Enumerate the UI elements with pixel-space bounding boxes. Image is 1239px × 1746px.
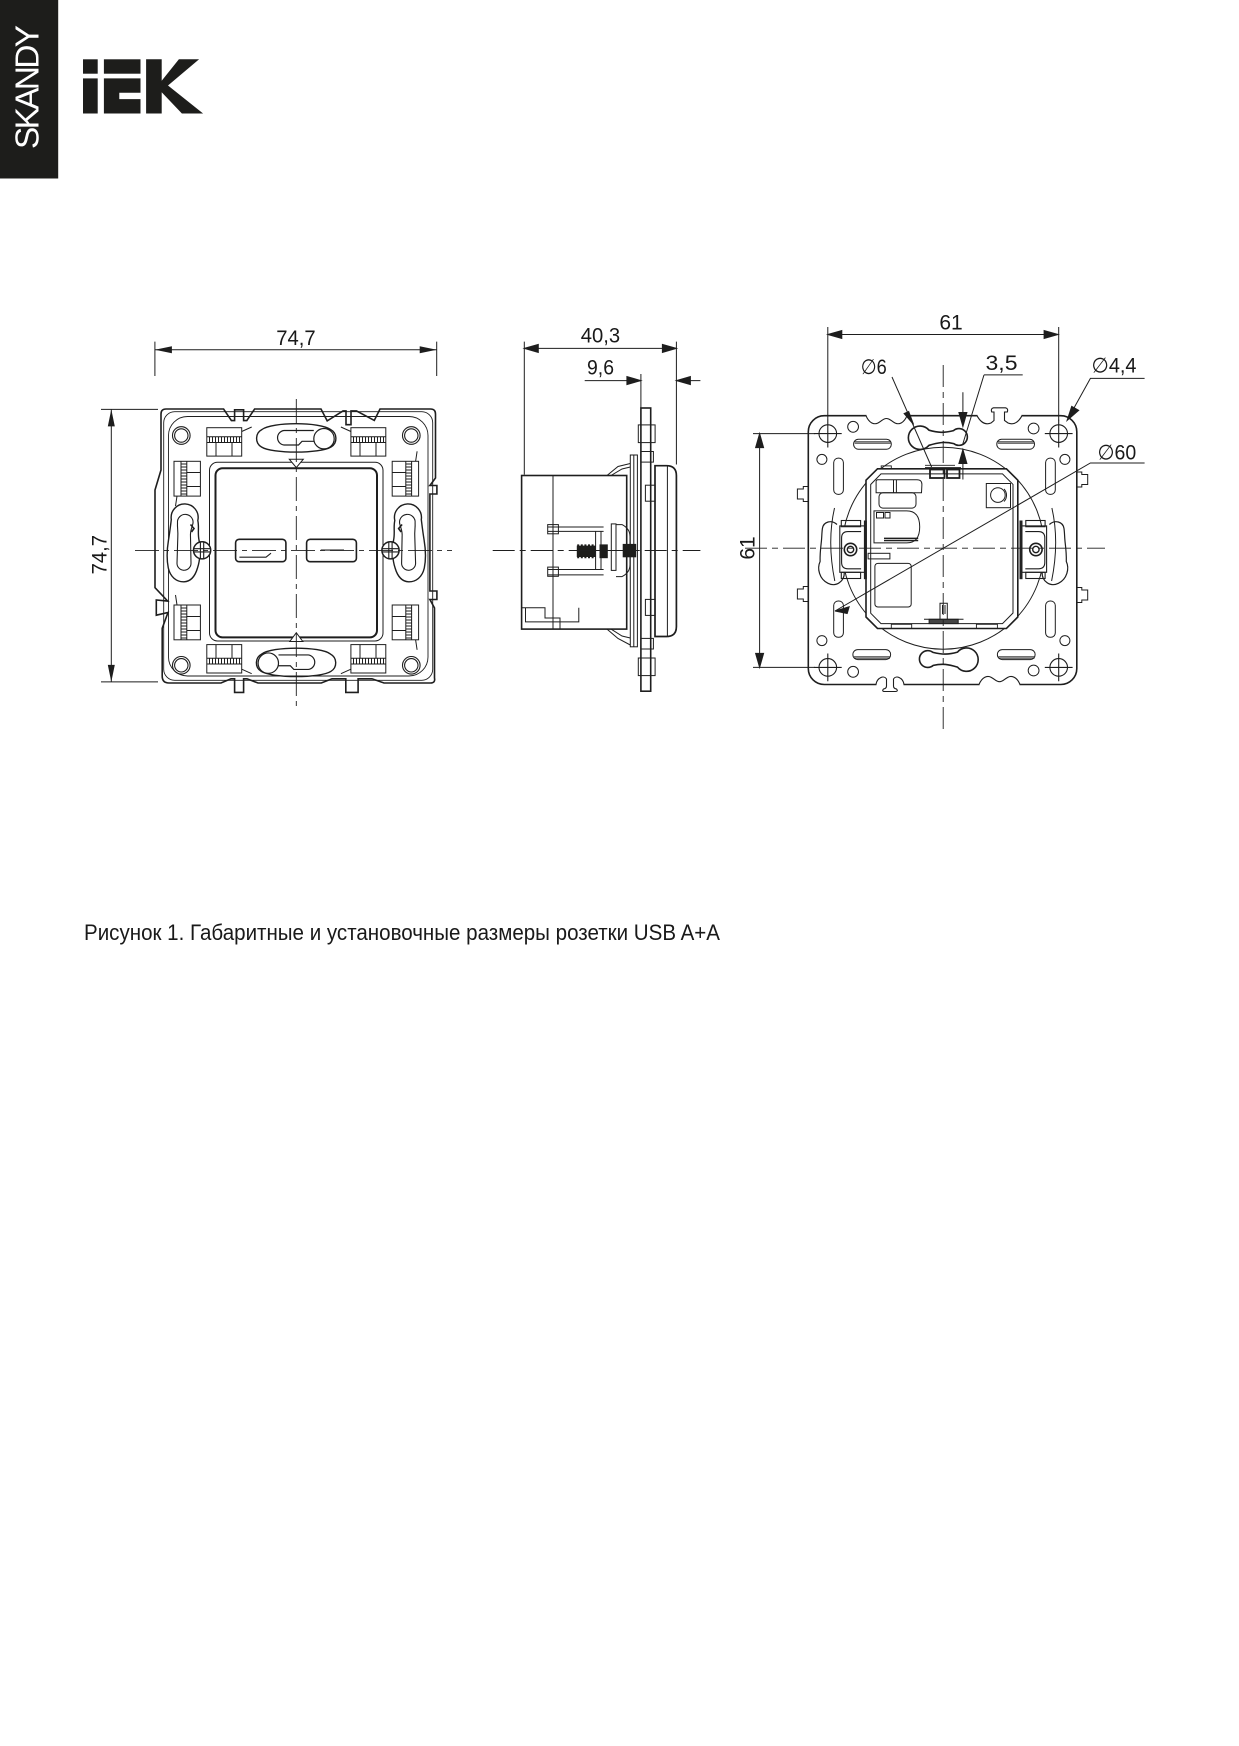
svg-text:9,6: 9,6: [587, 357, 614, 380]
svg-text:3,5: 3,5: [986, 352, 1018, 375]
svg-text:40,3: 40,3: [581, 325, 620, 348]
svg-text:61: 61: [737, 536, 760, 559]
svg-text:SKANDY: SKANDY: [10, 25, 47, 149]
svg-text:∅6: ∅6: [861, 356, 887, 379]
svg-text:74,7: 74,7: [89, 535, 112, 574]
svg-text:74,7: 74,7: [276, 327, 315, 350]
svg-text:∅60: ∅60: [1098, 442, 1137, 465]
svg-text:∅4,4: ∅4,4: [1092, 355, 1137, 378]
svg-text:61: 61: [939, 312, 962, 335]
svg-text:Рисунок 1. Габаритные и устано: Рисунок 1. Габаритные и установочные раз…: [84, 920, 720, 945]
